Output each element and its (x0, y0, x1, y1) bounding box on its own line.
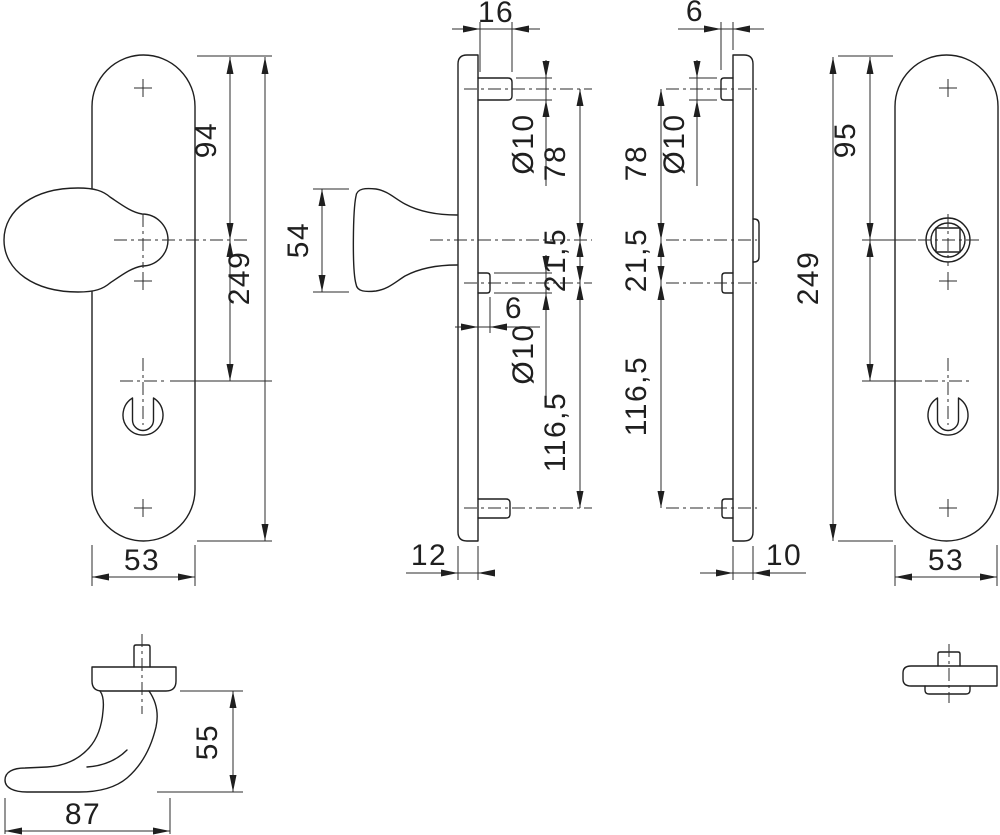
rose-collar (925, 686, 970, 694)
dimensions: 16 Ø10 54 78 21,5 116,5 (282, 0, 584, 580)
lever-grip-outline (5, 691, 157, 792)
dim-label-6: 6 (505, 292, 523, 325)
plate-outline (895, 55, 998, 541)
arrow (5, 828, 22, 835)
dim-label-16: 16 (478, 0, 514, 29)
rose-body (903, 666, 997, 686)
screw-cross (939, 499, 957, 517)
door-fitting-drawing: 94 249 53 16 (0, 0, 1000, 835)
arrow (577, 283, 584, 300)
screw-cross (134, 499, 152, 517)
arrow (658, 223, 665, 240)
arrow (92, 574, 109, 581)
arrow (478, 570, 495, 577)
dim-label-53: 53 (928, 544, 964, 577)
spindle-square-hub (918, 214, 980, 266)
dim-label-78: 78 (539, 145, 572, 181)
plate-outline (92, 55, 195, 541)
technical-drawing-page: 94 249 53 16 (0, 0, 1000, 835)
dim-label-dia10: Ø10 (507, 113, 540, 174)
arrow (658, 89, 665, 106)
arrow (178, 574, 195, 581)
arrow (867, 223, 874, 240)
arrow (658, 266, 665, 283)
view-inside-plate-front: 94 249 53 (4, 55, 272, 586)
screw-cross (939, 79, 957, 97)
arrow (694, 61, 701, 78)
dim-label-12: 12 (411, 539, 447, 572)
arrow (577, 240, 584, 257)
dim-label-6: 6 (686, 0, 704, 28)
fixing-cross (939, 272, 957, 290)
dimensions: 55 87 (5, 691, 243, 835)
arrow (153, 828, 170, 835)
dim-label-dia10: Ø10 (658, 113, 691, 174)
arrow (543, 61, 550, 78)
fixing-cross (134, 272, 152, 290)
dim-label-21-5: 21,5 (620, 228, 653, 292)
arrow (577, 491, 584, 508)
dim-label-249: 249 (792, 251, 825, 306)
arrow (543, 293, 550, 310)
arrow (658, 283, 665, 300)
dim-label-87: 87 (65, 798, 101, 831)
view-outside-plate-front: 95 249 53 (792, 55, 998, 586)
handle-rose-flange (92, 667, 176, 691)
dim-label-78: 78 (620, 145, 653, 181)
arrow (658, 491, 665, 508)
dim-label-dia10: Ø10 (507, 323, 540, 384)
view-inside-plate-side: 16 Ø10 54 78 21,5 116,5 (282, 0, 592, 580)
dim-label-95: 95 (829, 122, 862, 158)
arrow (230, 775, 237, 792)
arrow (577, 89, 584, 106)
arrow (577, 223, 584, 240)
arrow (867, 57, 874, 74)
dim-label-249: 249 (223, 251, 256, 306)
arrow (658, 240, 665, 257)
arrow (577, 266, 584, 283)
arrow (227, 223, 234, 240)
arrow (733, 26, 750, 33)
arrow (262, 524, 269, 541)
arrow (543, 100, 550, 117)
arrow (461, 324, 478, 331)
arrow (716, 570, 733, 577)
dim-label-10: 10 (766, 539, 802, 572)
arrow (830, 57, 837, 74)
arrow (227, 57, 234, 74)
arrow (830, 524, 837, 541)
view-outside-plate-side: 6 Ø10 78 21,5 116,5 10 (620, 0, 806, 580)
view-rose-side (903, 644, 997, 703)
arrow (895, 574, 912, 581)
plate-side-outline (733, 55, 753, 541)
arrow (512, 26, 529, 33)
dim-label-54: 54 (282, 222, 315, 258)
arrow (694, 100, 701, 117)
dim-label-94: 94 (190, 122, 223, 158)
arrow (867, 240, 874, 257)
plate-side-outline (458, 55, 478, 541)
lever-grip-detail-curve (87, 750, 127, 767)
arrow (230, 691, 237, 708)
dimensions: 94 249 53 (92, 56, 272, 586)
arrow (867, 364, 874, 381)
arrow (262, 57, 269, 74)
screw-cross (134, 79, 152, 97)
arrow (704, 26, 721, 33)
dim-label-55: 55 (191, 724, 224, 760)
arrow (980, 574, 997, 581)
dim-label-53: 53 (124, 544, 160, 577)
dimensions: 6 Ø10 78 21,5 116,5 10 (620, 0, 806, 580)
arrow (319, 189, 326, 206)
dim-label-116-5: 116,5 (620, 356, 653, 436)
arrow (227, 364, 234, 381)
view-lever-handle: 55 87 (5, 634, 243, 835)
dim-label-116-5: 116,5 (539, 392, 572, 472)
arrow (319, 275, 326, 292)
